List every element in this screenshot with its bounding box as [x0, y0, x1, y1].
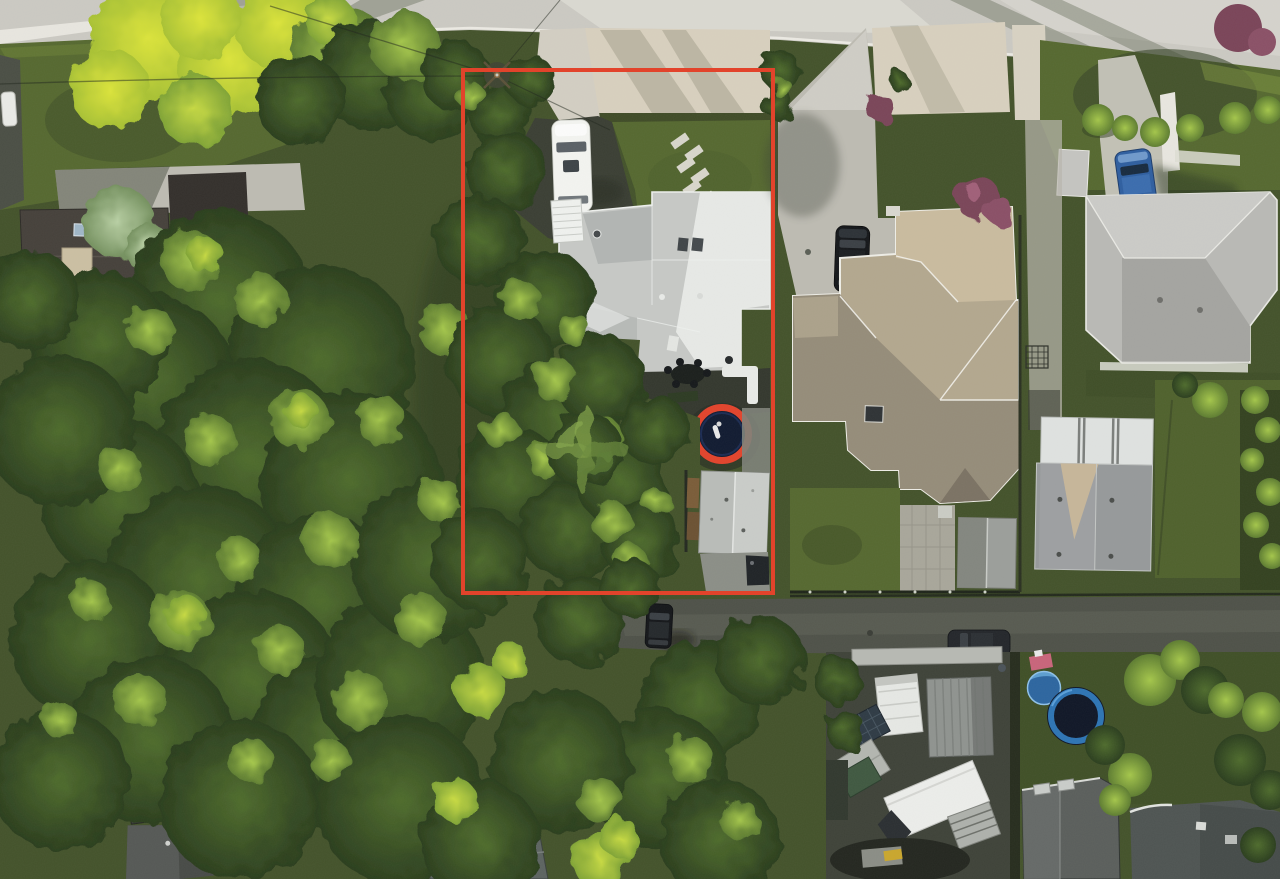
aerial-photo-canvas	[0, 0, 1280, 879]
photo-grain	[0, 0, 1280, 879]
aerial-photo	[0, 0, 1280, 879]
